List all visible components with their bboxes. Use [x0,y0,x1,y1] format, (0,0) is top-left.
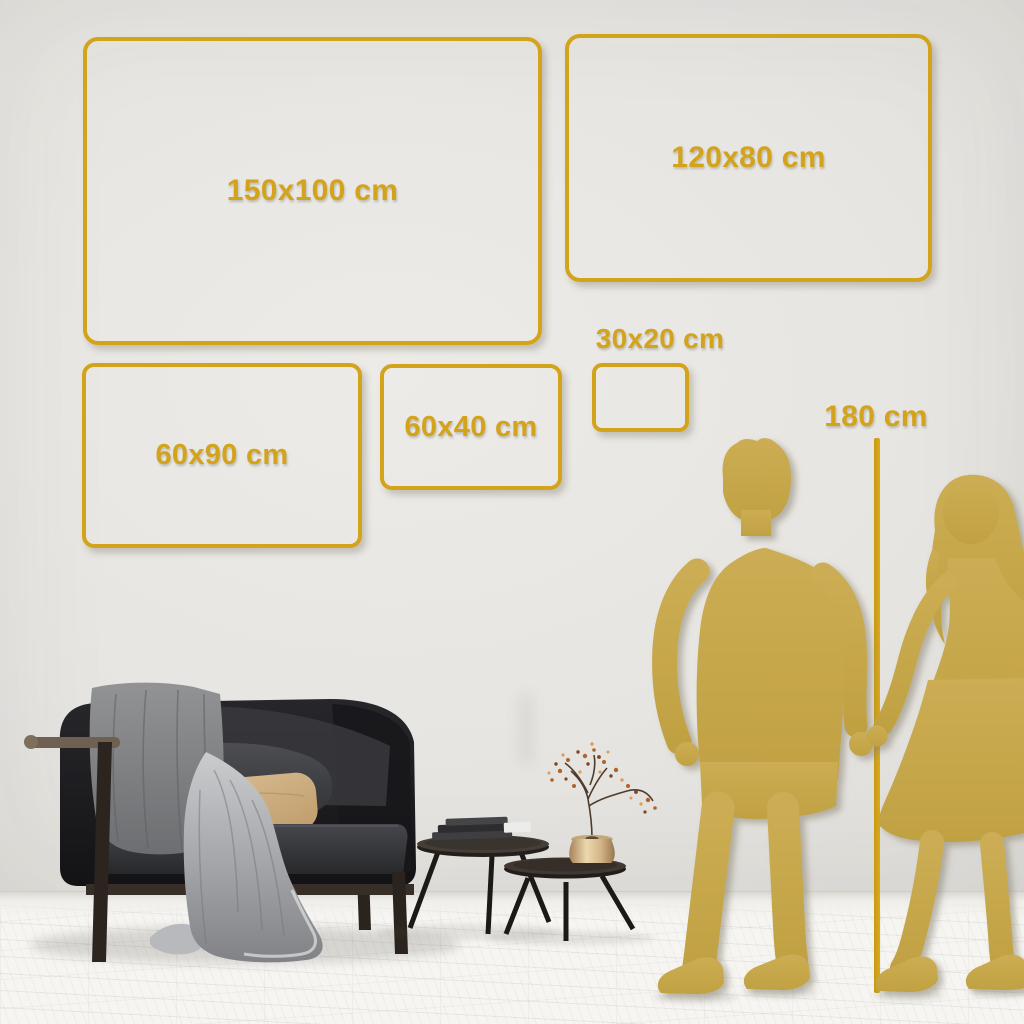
sofa-illustration [24,683,460,964]
vase-plant [548,742,657,863]
room-illustration [0,0,1024,1024]
man-silhouette [658,438,873,994]
woman-silhouette [867,475,1024,992]
coffee-tables [378,742,657,945]
size-comparison-scene: 150x100 cm 120x80 cm 60x90 cm 60x40 cm 3… [0,0,1024,1024]
